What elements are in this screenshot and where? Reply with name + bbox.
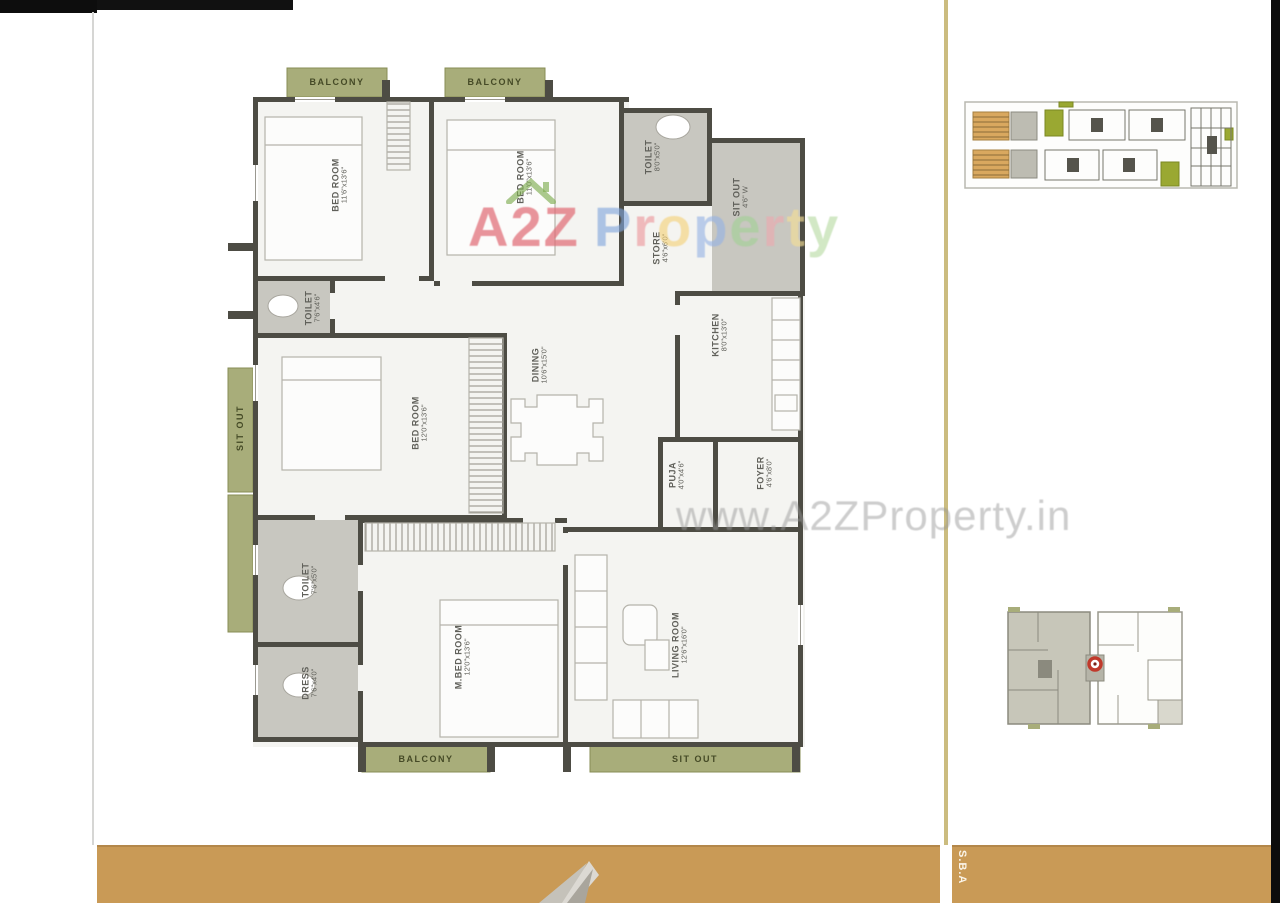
balcony-label-top-left: BALCONY — [310, 77, 365, 87]
room-label-bedroom-3: BED ROOM12'0"x13'6" — [411, 396, 430, 450]
room-label-kitchen: KITCHEN8'0"x13'0" — [711, 313, 730, 357]
footer-vertical-text: S.B.A — [956, 850, 968, 903]
key-plan-building-strip — [963, 98, 1243, 193]
top-black-bar — [0, 0, 97, 13]
right-unit — [1098, 612, 1182, 724]
panel-divider-rule — [944, 0, 948, 845]
room-label-foyer: FOYER4'6"x8'0" — [756, 456, 775, 490]
left-unit-highlighted — [1008, 612, 1090, 724]
room-label-living: LIVING ROOM12'6"x16'0" — [671, 612, 690, 678]
room-label-puja: PUJA4'0"x4'6" — [668, 461, 687, 490]
top-black-bar-extension — [97, 0, 293, 10]
sitout-label-left: SIT OUT — [235, 405, 245, 451]
unit-location-marker-dot — [1093, 662, 1096, 665]
room-label-toilet-3: TOILET7'6"x5'0" — [301, 563, 320, 598]
watermark-url: www.A2ZProperty.in — [676, 492, 1071, 540]
room-label-toilet-2: TOILET7'6"x4'6" — [304, 291, 323, 326]
footer-bar-right — [952, 845, 1271, 903]
key-plan-unit-pair — [998, 600, 1198, 735]
room-label-dress: DRESS7'6"x4'0" — [301, 666, 320, 700]
footer-bar-left — [97, 845, 940, 903]
right-black-edge — [1271, 0, 1280, 903]
room-label-bedroom-1: BED ROOM11'6"x13'6" — [331, 158, 350, 212]
room-label-dining: DINING10'6"x15'0" — [531, 347, 550, 384]
footer-logo-mark — [527, 855, 617, 903]
floor-plan: BED ROOM11'6"x13'6" BED ROOM11'0"x13'6" … — [225, 65, 805, 775]
balcony-label-bottom-left: BALCONY — [399, 754, 454, 764]
balcony-label-top-right: BALCONY — [468, 77, 523, 87]
room-label-master-bedroom: M.BED ROOM12'0"x13'6" — [454, 625, 473, 690]
watermark-house-icon — [505, 178, 557, 204]
left-margin-rule — [92, 12, 94, 845]
scanned-floorplan-page: BED ROOM11'6"x13'6" BED ROOM11'0"x13'6" … — [0, 0, 1280, 903]
sitout-label-bottom-right: SIT OUT — [672, 754, 718, 764]
room-label-toilet-1: TOILET8'0"x5'0" — [644, 140, 663, 175]
